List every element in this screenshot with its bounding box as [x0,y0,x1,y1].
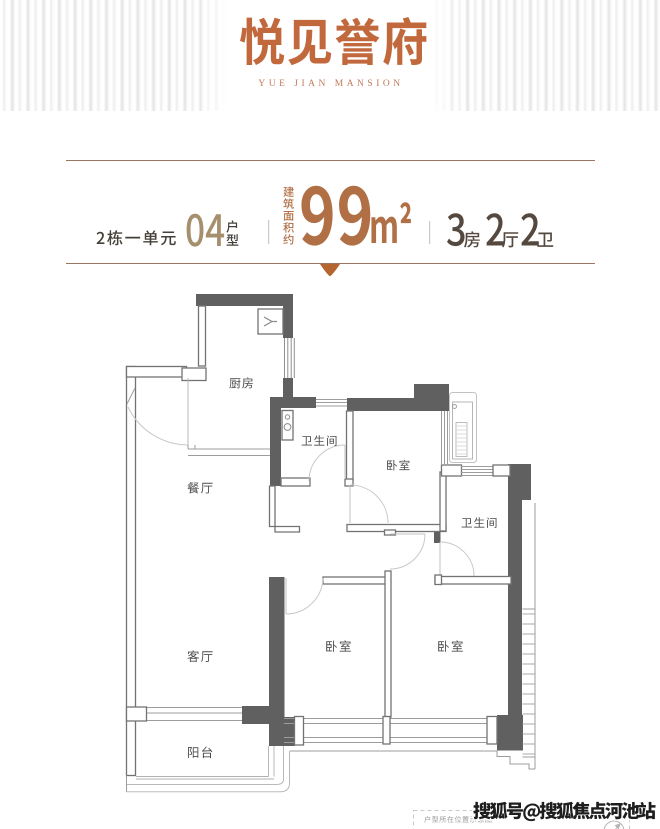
svg-text:YUE JIAN MANSION: YUE JIAN MANSION [258,79,403,89]
